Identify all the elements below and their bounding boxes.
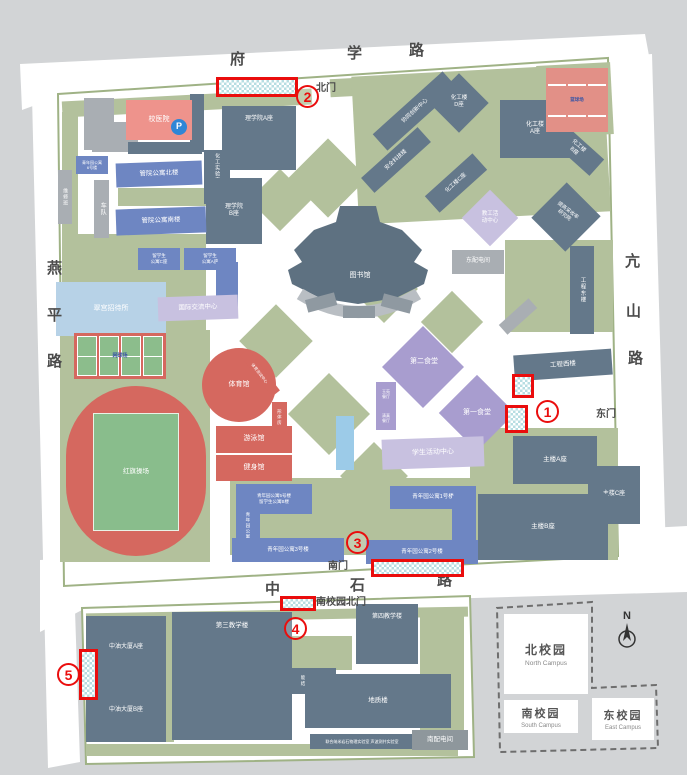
building-nanpeidianjian-label: 南配电间 bbox=[427, 736, 453, 744]
building-lab-bar: 联合纳米岩石物理实验室 声波测井实验室 bbox=[310, 734, 414, 749]
tennis-courts: 网球场 bbox=[74, 333, 166, 379]
building-qingzhen-canting: 清真 餐厅 bbox=[376, 406, 396, 430]
inset-north-campus: 北校园 North Campus bbox=[504, 614, 588, 694]
inset-north-campus-label: 北校园 bbox=[525, 641, 567, 658]
building-xietong-chuangxin-zhongxin-label: 协同创新中心 bbox=[400, 97, 429, 124]
building-guanyuan-gongyu-bei-label: 管院公寓北楼 bbox=[139, 169, 178, 178]
inset-east-campus-label: 东校园 bbox=[604, 707, 643, 723]
jiaogong-huodong-label-label: 教工活 动中心 bbox=[482, 211, 499, 225]
building-liuxuesheng-gongyu-c-label: 留学生 公寓C座 bbox=[151, 253, 168, 264]
building-qingnianyuan-gongyu-2-label: 青年园公寓2号楼 bbox=[401, 549, 443, 556]
building-lixueyuan-b-label: 理学院 B座 bbox=[225, 204, 243, 219]
building-lixueyuan-a: 理学院A座 bbox=[222, 106, 296, 170]
building-nanpeidianjian: 南配电间 bbox=[412, 730, 468, 750]
inset-south-campus-label: 南校园 bbox=[522, 705, 561, 721]
building-weixiuban-label: 维修班 bbox=[62, 188, 68, 206]
inset-north-campus-sublabel: North Campus bbox=[525, 660, 567, 667]
marker-3-number[interactable]: 3 bbox=[346, 531, 369, 554]
pond bbox=[336, 416, 354, 470]
building-qingzhen-canting-label: 清真 餐厅 bbox=[382, 413, 390, 423]
dier-shitang-label: 第二食堂 bbox=[398, 356, 450, 368]
road-kangshan-char-2: 山 bbox=[626, 300, 641, 321]
building-lixueyuan-a-label: 理学院A座 bbox=[245, 116, 273, 124]
inset-south-campus: 南校园 South Campus bbox=[504, 700, 578, 733]
marker-4-number[interactable]: 4 bbox=[284, 617, 307, 640]
building-zhulou-b-label: 主楼B座 bbox=[531, 523, 555, 531]
building-guanyuan-gongyu-nan-label: 管院公寓南楼 bbox=[141, 216, 180, 225]
hongqi-caochang: 红旗操场 bbox=[93, 413, 179, 531]
building-chedui-label: 车队 bbox=[98, 202, 106, 216]
marker-3-zone[interactable] bbox=[371, 559, 464, 577]
building-dizhilou: 地质楼 bbox=[305, 674, 451, 728]
building-zhulou-a: 主楼A座 bbox=[513, 436, 597, 484]
diyi-shitang-label: 第一食堂 bbox=[452, 407, 502, 419]
marker-1-zone-1[interactable] bbox=[512, 374, 534, 398]
inset-south-campus-sublabel: South Campus bbox=[521, 723, 561, 729]
road-kangshan-char-3: 路 bbox=[628, 347, 643, 368]
building-gongcheng-donglou-label: 工程东楼 bbox=[579, 277, 586, 303]
marker-1-zone-2[interactable] bbox=[505, 405, 528, 433]
road-fuxue-char-3: 路 bbox=[409, 39, 424, 60]
building-zhongyou-dasha-b: 中油大厦B座 bbox=[86, 680, 166, 742]
building-zhongyou-dasha-a-label: 中油大厦A座 bbox=[109, 644, 143, 652]
parking-icon: P bbox=[171, 119, 187, 135]
road-zhongshi-char-1: 中 bbox=[265, 578, 280, 599]
building-lixueyuan-b: 理学院 B座 bbox=[206, 178, 262, 244]
building-yuyuan-canting: 玉苑 餐厅 bbox=[376, 382, 396, 406]
building-qingnianyuan-gongyu-1-label: 青年园公寓1号楼 bbox=[412, 494, 454, 501]
building-zhulou-b: 主楼B座 bbox=[478, 494, 608, 560]
basketball-courts-label: 篮球场 bbox=[546, 68, 608, 132]
building-disan-jiaoxuelou-label: 第三教学楼 bbox=[216, 622, 249, 630]
building-huagonglou-a-label: 化工楼 A座 bbox=[526, 122, 544, 137]
building-yuyuan-canting-label: 玉苑 餐厅 bbox=[382, 389, 390, 399]
building-dizhilou-label: 地质楼 bbox=[368, 697, 388, 705]
building-cuigong-zhaodaisuo-label: 翠宫招待所 bbox=[94, 305, 129, 314]
building-unnamed-4 bbox=[190, 94, 204, 152]
building-liuxuesheng-gongyu-c: 留学生 公寓C座 bbox=[138, 248, 180, 270]
building-disan-jiaoxuelou: 第三教学楼 bbox=[172, 612, 292, 740]
diyi-shitang-label-label: 第一食堂 bbox=[463, 409, 491, 418]
building-anquan-kejilou-label: 安全科技楼 bbox=[383, 148, 408, 172]
building-cuigong-zhaodaisuo: 翠宫招待所 bbox=[56, 282, 166, 336]
marker-1-number[interactable]: 1 bbox=[536, 400, 559, 423]
building-disi-jiaoxuelou: 第四教学楼 bbox=[356, 604, 418, 664]
building-dongpeidianjian: 东配电间 bbox=[452, 250, 504, 274]
building-gongcheng-xilou-label: 工程西楼 bbox=[550, 360, 577, 370]
road-zhongshi-char-2: 石 bbox=[350, 574, 365, 595]
building-guoji-jiaoliu-zhongxin: 国际交流中心 bbox=[158, 295, 239, 322]
building-zhulou-a-label: 主楼A座 bbox=[543, 456, 567, 464]
marker-4-zone[interactable] bbox=[280, 596, 316, 611]
gate-north: 北门 bbox=[316, 79, 336, 94]
jiaogong-huodong-label: 教工活 动中心 bbox=[472, 206, 508, 230]
gate-east: 东门 bbox=[596, 405, 616, 420]
building-dongpeidianjian-label: 东配电间 bbox=[466, 258, 490, 266]
road-yanping-char-2: 平 bbox=[47, 304, 62, 325]
building-qingnianyuan-gongyu-5-label: 青年园公寓5号楼 留学生公寓B楼 bbox=[257, 493, 291, 504]
road-fuxue-char-2: 学 bbox=[347, 42, 362, 63]
building-zhongyou-dasha-a: 中油大厦A座 bbox=[86, 616, 166, 680]
inset-east-campus: 东校园 East Campus bbox=[592, 698, 654, 740]
tennis-courts-label: 网球场 bbox=[74, 333, 166, 379]
building-qingnianyuan-gongyu-6: 青年园公寓 6号楼 bbox=[76, 156, 108, 174]
hongqi-caochang-label: 红旗操场 bbox=[123, 468, 149, 476]
inset-east-campus-sublabel: East Campus bbox=[605, 725, 641, 731]
building-youyongguan-label: 游泳馆 bbox=[244, 435, 265, 444]
library-label: 图书馆 bbox=[338, 270, 382, 282]
parking-icon-label: P bbox=[176, 121, 182, 132]
marker-2-zone[interactable] bbox=[216, 77, 298, 97]
compass-n-label: N bbox=[612, 610, 642, 622]
building-huagonglou-b-label: 化工楼 B座 bbox=[565, 138, 586, 159]
huagonglou-d-label-label: 化工楼 D座 bbox=[451, 95, 468, 109]
building-guoji-jiaoliu-zhongxin-label: 国际交流中心 bbox=[178, 303, 217, 312]
building-unnamed-5 bbox=[499, 298, 537, 334]
building-huagonglou-c-label: 化工楼C座 bbox=[444, 172, 468, 194]
road-fuxue-char-1: 府 bbox=[230, 48, 245, 69]
building-jianshenguan: 健身馆 bbox=[216, 455, 292, 481]
marker-2-number[interactable]: 2 bbox=[296, 85, 319, 108]
building-zhongyou-dasha-b-label: 中油大厦B座 bbox=[109, 707, 143, 715]
compass-icon bbox=[616, 622, 638, 650]
basketball-courts: 篮球场 bbox=[546, 68, 608, 132]
building-guanyuan-gongyu-bei: 管院公寓北楼 bbox=[116, 161, 203, 188]
marker-5-number[interactable]: 5 bbox=[57, 663, 80, 686]
building-weixiuban: 维修班 bbox=[58, 170, 72, 224]
building-gongcheng-donglou: 工程东楼 bbox=[570, 246, 594, 334]
gate-south-campus-north: 南校园北门 bbox=[316, 593, 366, 608]
road-kangshan-char-1: 亢 bbox=[625, 250, 640, 271]
building-xiaoyiyuan-label: 校医院 bbox=[149, 116, 170, 125]
building-xuesheng-huodong-zhongxin-label: 学生活动中心 bbox=[412, 448, 454, 458]
building-guanyuan-gongyu-nan: 管院公寓南楼 bbox=[116, 206, 207, 235]
building-xuesheng-huodong-zhongxin: 学生活动中心 bbox=[382, 436, 485, 470]
road-yanping-char-3: 路 bbox=[47, 350, 62, 371]
compass: N bbox=[612, 610, 642, 655]
gate-south: 南门 bbox=[328, 557, 348, 572]
building-qingnianyuan-gongyu-6-label: 青年园公寓 6号楼 bbox=[82, 160, 102, 170]
road-yanping-char-1: 燕 bbox=[47, 257, 62, 278]
library-label-label: 图书馆 bbox=[350, 272, 371, 281]
building-qingnianyuan-gongyu-3-label: 青年园公寓3号楼 bbox=[267, 547, 309, 554]
campus-map: 校医院P理学院A座化工实验实践中心理学院 B座维修班车队管院公寓北楼管院公寓南楼… bbox=[0, 0, 687, 775]
building-lab-bar-label: 联合纳米岩石物理实验室 声波测井实验室 bbox=[325, 739, 398, 744]
building-disi-jiaoxuelou-label: 第四教学楼 bbox=[372, 614, 402, 622]
building-chedui: 车队 bbox=[94, 180, 109, 238]
building-tiyuguan-label: 体育馆 bbox=[229, 381, 250, 390]
building-xingtifang-label: 形体房 bbox=[277, 409, 283, 426]
marker-5-zone[interactable] bbox=[79, 649, 98, 700]
building-youyongguan: 游泳馆 bbox=[216, 426, 292, 453]
dier-shitang-label-label: 第二食堂 bbox=[410, 358, 438, 367]
building-jianshenguan-label: 健身馆 bbox=[244, 464, 265, 473]
